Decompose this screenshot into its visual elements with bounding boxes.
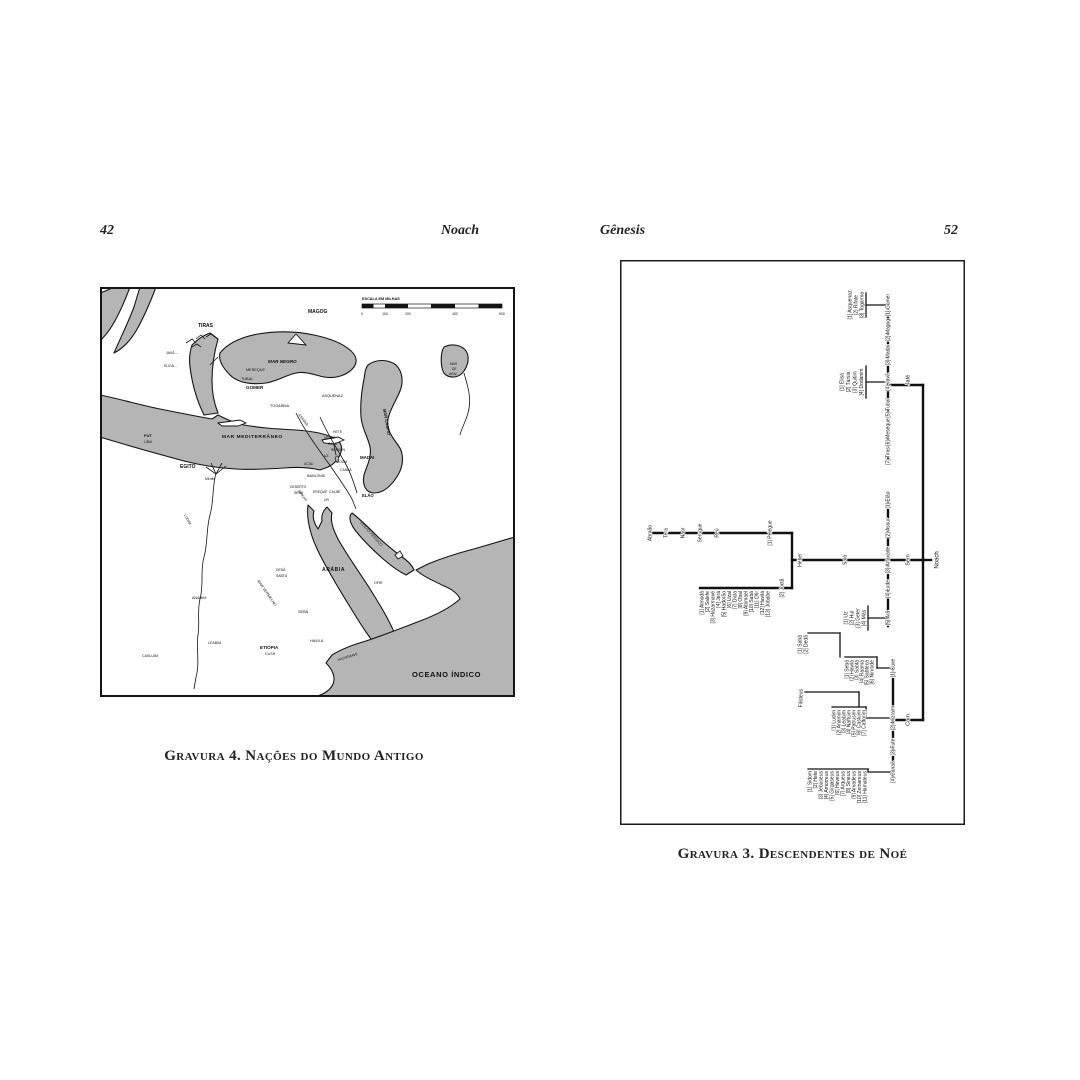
map-label: CANAÃ — [340, 467, 352, 472]
tree-node-label: Héber — [797, 553, 803, 567]
tree-node-label: [1] Elisá — [839, 373, 845, 391]
map-label: UR — [324, 498, 329, 502]
tree-node-label: [7] Caftorim — [861, 710, 867, 736]
tree-node-label: Tera — [663, 528, 669, 538]
tree-node-label: Reú — [714, 528, 720, 537]
tree-node-label: Salá — [842, 555, 848, 565]
tree-node-label: [2] Társis — [846, 371, 852, 392]
map-label: FUT — [144, 433, 152, 438]
tree-node-label: Serugue — [697, 523, 703, 542]
map-label: SABTÁ — [276, 574, 288, 578]
tree-node-label: [3] Arfaxade — [885, 546, 891, 573]
map-label: ELISÁ – — [164, 364, 177, 368]
tree-node-label: [4] Javã — [885, 373, 891, 391]
map-label: HETE — [333, 430, 343, 434]
map-label: OFIR — [374, 581, 383, 585]
map-label: NÍNIVE — [324, 436, 336, 440]
tree-node-label: Naor — [680, 527, 686, 538]
tree-node-label: [2] Magog — [885, 319, 891, 341]
tree-node-label: Sem — [905, 554, 911, 566]
map-label: BABILÔNIA — [307, 473, 326, 478]
book-spread: 42 Noach Gênesis 52 — [0, 0, 1080, 1080]
tree-node-label: [3] Quitim — [852, 371, 858, 392]
map-label: ARAL — [448, 372, 458, 376]
noah-descendants-tree: NoachJaféSemCam[1] Gomer[2] Magog[3] Mad… — [620, 260, 965, 825]
scale-tick: 600 — [499, 312, 505, 316]
map-label: MAR NEGRO — [268, 359, 297, 364]
map-label: SEBÁ — [298, 610, 309, 614]
tree-node-label: [7] Tiras — [885, 447, 891, 465]
map-label: EREQUE — [313, 490, 328, 494]
ancient-world-map: ESCALA EM MILHAS 0100200400600 TIRASMAGO… — [100, 287, 515, 697]
map-label: CALNÉ — [329, 489, 341, 494]
scale-tick: 100 — [382, 312, 388, 316]
map-label: ASQUENAZ — [322, 394, 344, 398]
map-label: HAVILÁ — [310, 639, 324, 643]
running-head-left: Noach — [400, 223, 520, 239]
page-number-right: 52 — [898, 223, 958, 239]
map-label: UZ — [324, 454, 329, 458]
map-label: MAR — [450, 362, 458, 366]
tree-node-label: [1] Pelegue — [767, 520, 773, 546]
scale-tick: 0 — [361, 312, 363, 316]
tree-node-label: [1] Cuxe — [890, 658, 896, 677]
map-label: TUBAL — [241, 377, 253, 381]
map-label: ANAMIM — [192, 596, 206, 600]
tree-node-label: [6] Ninrode — [869, 660, 875, 685]
map-label: LEABIM — [208, 641, 221, 645]
tree-node-label: [1] Elão — [885, 491, 891, 508]
tree-node-label: [5] Arã — [885, 611, 891, 626]
scale-tick: 400 — [452, 312, 458, 316]
tree-node-label: [2] Joctã — [779, 578, 785, 597]
map-label: ACAD — [304, 462, 314, 466]
tree-node-label: [3] Togarma — [859, 292, 865, 319]
tree-node-label: [2] Mizraim — [890, 706, 896, 730]
caption-tree: Gravura 3. Descendentes de Noé — [620, 846, 965, 863]
map-label: CASLUIM — [142, 654, 158, 658]
tree-node-label: Abraão — [647, 525, 653, 541]
scale-label: ESCALA EM MILHAS — [362, 297, 400, 301]
map-label: MADAI — [360, 455, 374, 460]
map-label: CALÁ — [328, 442, 338, 446]
map-label: TOGARMA — [270, 404, 290, 408]
map-label: ARÁBIA — [322, 566, 345, 573]
map-label: MAR MEDITERRÂNEO — [222, 433, 283, 440]
tree-node-label: [13] Jobabe — [765, 591, 771, 617]
map-label: ETIÓPIA — [260, 643, 279, 650]
map-label: Mênfis — [205, 477, 215, 481]
map-label: DEDÃ — [276, 567, 286, 572]
tree-node-label: Noach — [935, 551, 941, 568]
map-label: SIDOM — [336, 460, 347, 464]
map-label: CUSH — [265, 652, 276, 656]
caption-map: Gravura 4. Nações do Mundo Antigo — [103, 748, 485, 765]
map-label: MESEQUE — [246, 368, 265, 372]
map-label: RESSEN — [331, 448, 345, 452]
tree-node-label: [3] Fute — [890, 738, 896, 755]
map-label: SÍRIO — [294, 491, 304, 495]
tree-node-label: [6] Meseque — [885, 418, 891, 446]
tree-node-label: [2] Assur — [885, 518, 891, 538]
tree-node-label: [4] Canaã — [890, 761, 896, 783]
map-label: JAVÃ – — [166, 350, 177, 355]
page-number-left: 42 — [100, 223, 114, 239]
tree-node-label: [1] Gomer — [885, 294, 891, 317]
running-head-right: Gênesis — [600, 223, 645, 239]
tree-node-label: [4] Más — [861, 609, 867, 626]
map-label: ELÃO — [362, 493, 374, 498]
map-label: GOMER — [246, 385, 264, 390]
map-label: MAGOG — [308, 309, 328, 315]
map-label: LÍBIA — [144, 440, 153, 444]
tree-node-label: [3] Madai — [885, 345, 891, 366]
tree-node-label: Filisteus — [798, 689, 804, 708]
scale-tick: 200 — [405, 312, 411, 316]
tree-node-label: [4] Lude — [885, 580, 891, 598]
map-label: OCEANO ÍNDICO — [412, 670, 481, 679]
tree-node-label: Cam — [905, 714, 911, 726]
tree-node-label: [2] Dedã — [803, 635, 809, 654]
tree-node-label: [4] Dodanim — [859, 369, 865, 396]
map-label: EGITO — [180, 464, 196, 470]
tree-node-label: [11] Hamateus — [862, 771, 868, 804]
map-label: TIRAS — [198, 323, 214, 329]
tree-node-label: [5] Tubal — [885, 398, 891, 417]
tree-node-label: Jafé — [905, 375, 911, 385]
map-label: DESERTO — [290, 485, 307, 489]
